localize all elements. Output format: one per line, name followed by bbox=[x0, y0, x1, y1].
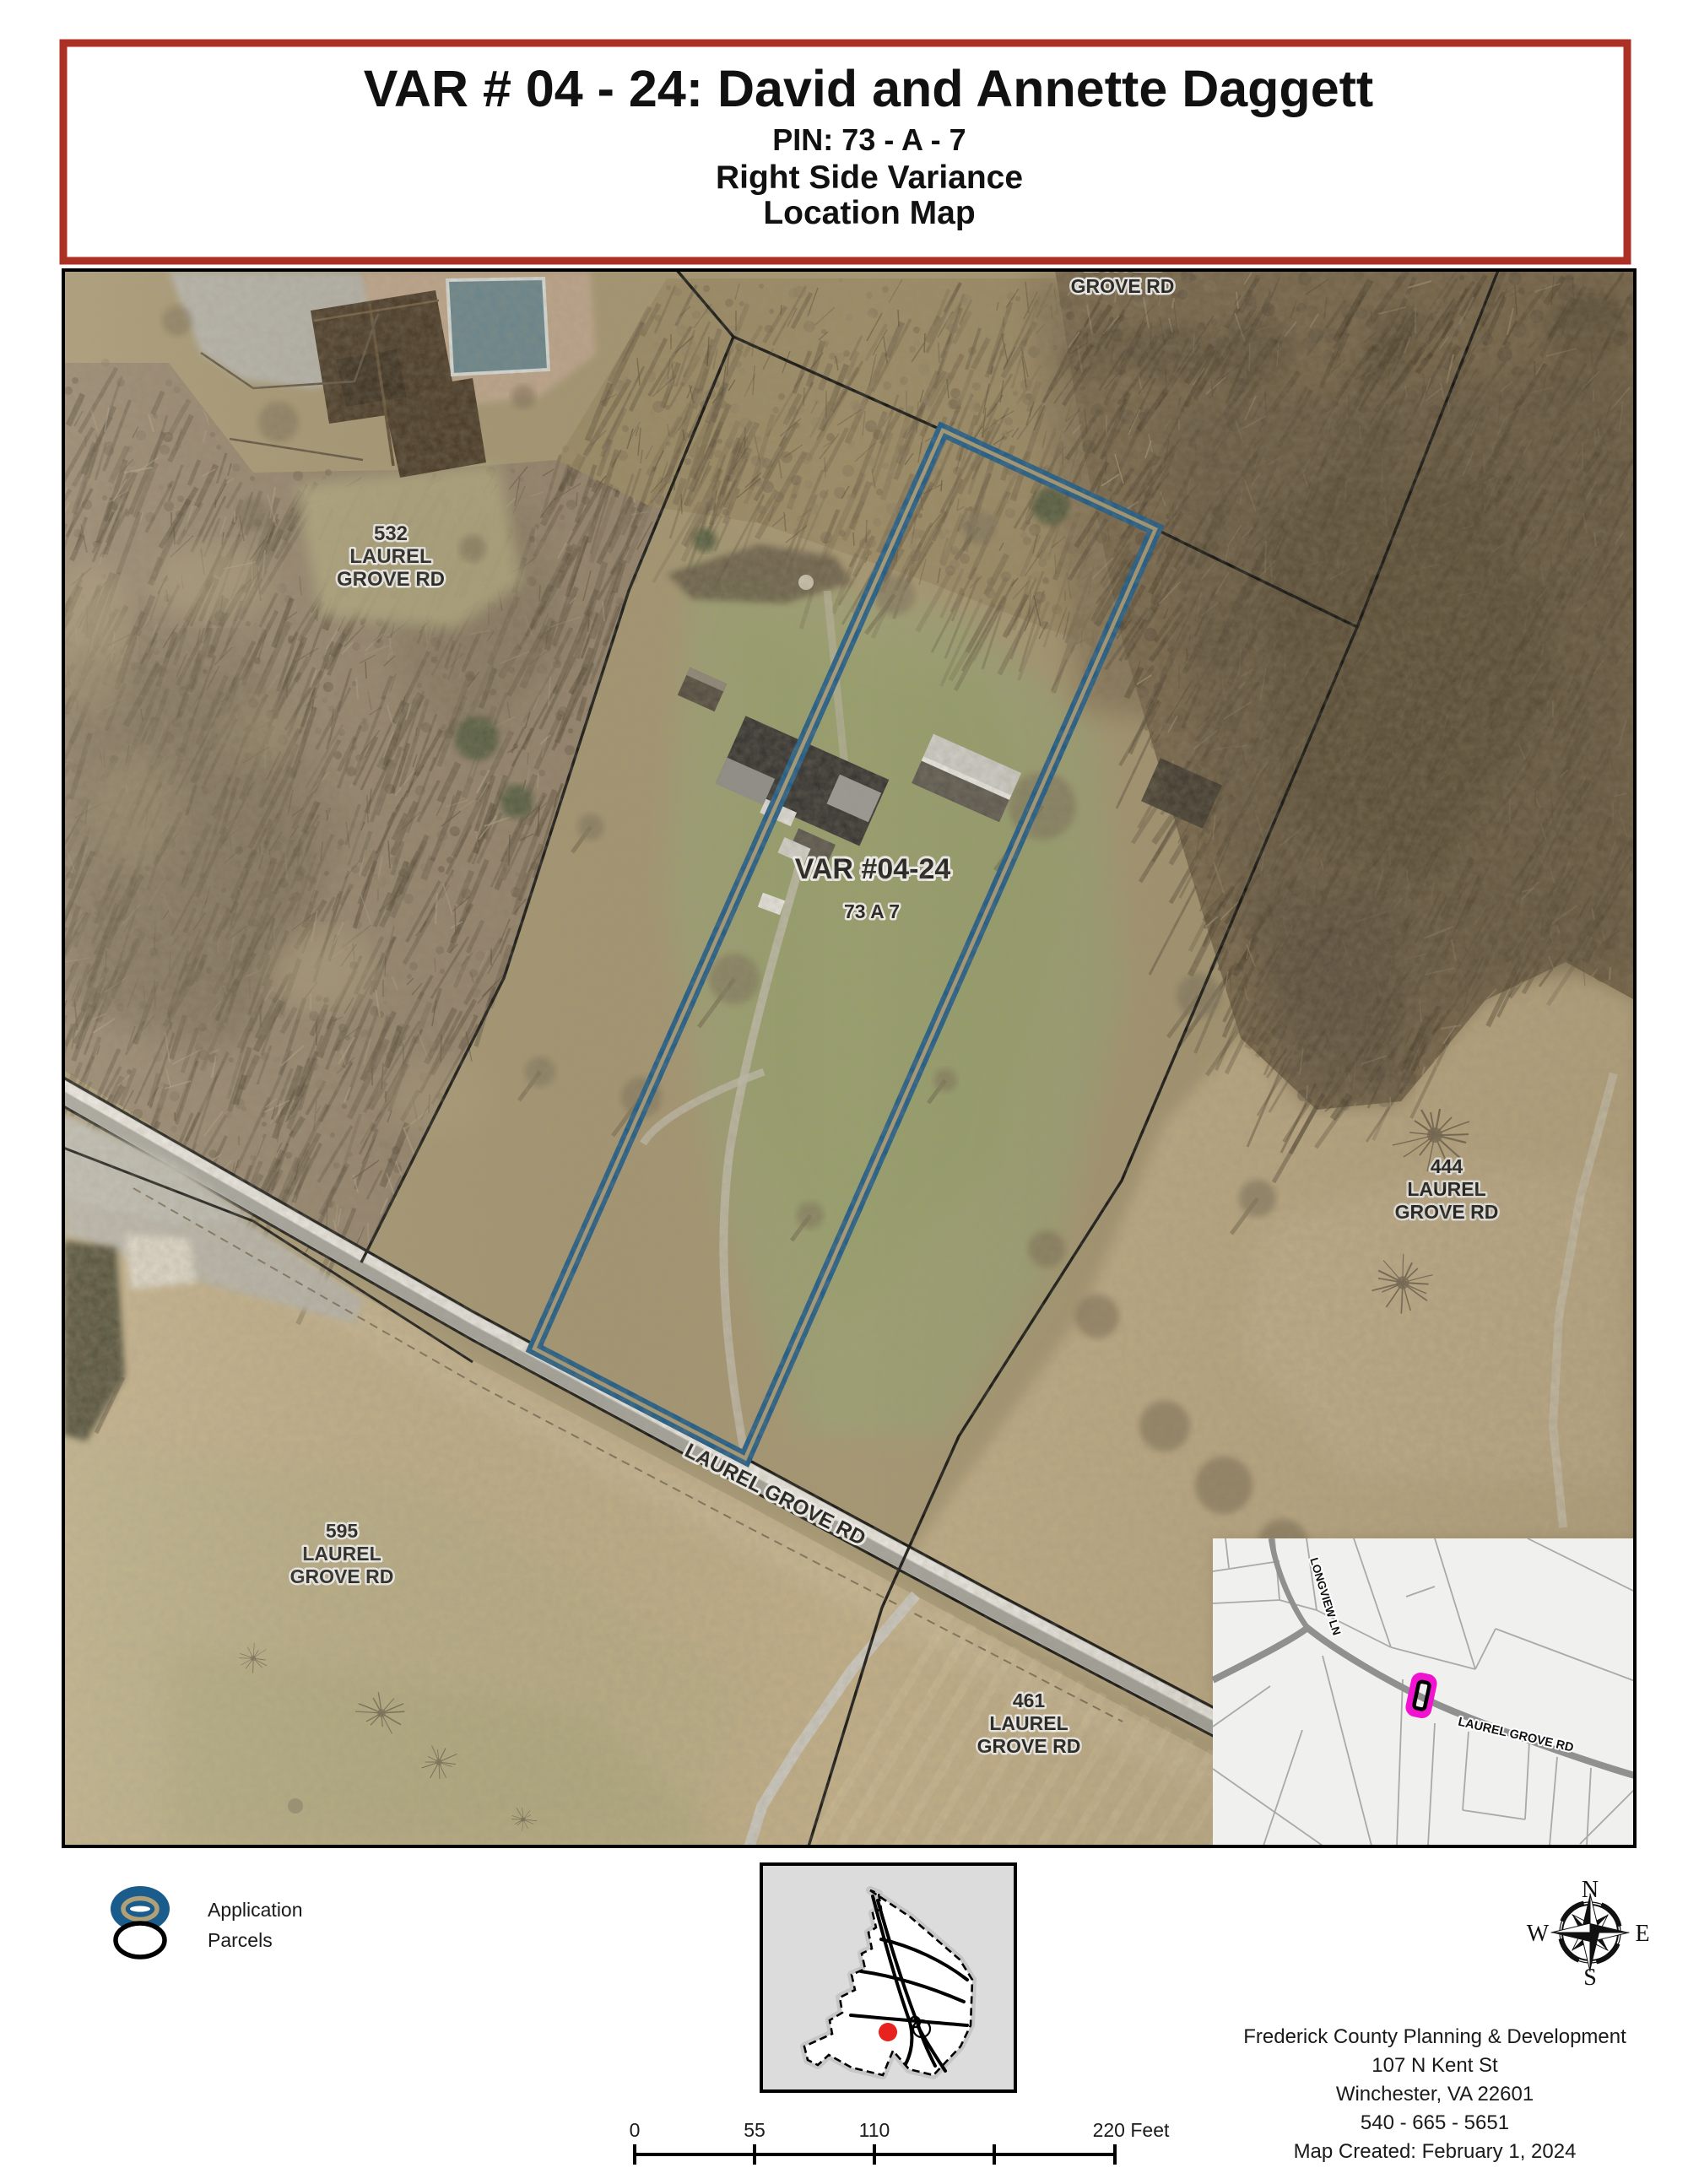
svg-text:Right Side Variance: Right Side Variance bbox=[716, 159, 1023, 196]
svg-text:220 Feet: 220 Feet bbox=[1093, 2119, 1170, 2141]
svg-text:W: W bbox=[1527, 1921, 1550, 1947]
svg-text:Frederick County Planning & De: Frederick County Planning & Development bbox=[1243, 2025, 1626, 2048]
svg-text:0: 0 bbox=[630, 2119, 641, 2141]
svg-text:S: S bbox=[1583, 1965, 1597, 1991]
svg-text:E: E bbox=[1635, 1921, 1649, 1947]
svg-text:Location Map: Location Map bbox=[763, 195, 975, 231]
svg-text:N: N bbox=[1582, 1877, 1599, 1903]
svg-text:107 N Kent St: 107 N Kent St bbox=[1371, 2054, 1498, 2077]
svg-text:Winchester, VA 22601: Winchester, VA 22601 bbox=[1336, 2083, 1534, 2106]
svg-text:Application: Application bbox=[208, 1899, 303, 1921]
svg-text:540 - 665 - 5651: 540 - 665 - 5651 bbox=[1361, 2111, 1509, 2134]
svg-text:55: 55 bbox=[744, 2119, 766, 2141]
svg-text:PIN: 73 - A - 7: PIN: 73 - A - 7 bbox=[772, 122, 966, 157]
svg-text:VAR # 04 - 24: David and Annet: VAR # 04 - 24: David and Annette Daggett bbox=[364, 60, 1374, 117]
svg-text:Parcels: Parcels bbox=[208, 1929, 273, 1951]
svg-text:110: 110 bbox=[859, 2119, 890, 2141]
svg-text:Map Created: February 1, 2024: Map Created: February 1, 2024 bbox=[1294, 2140, 1577, 2163]
